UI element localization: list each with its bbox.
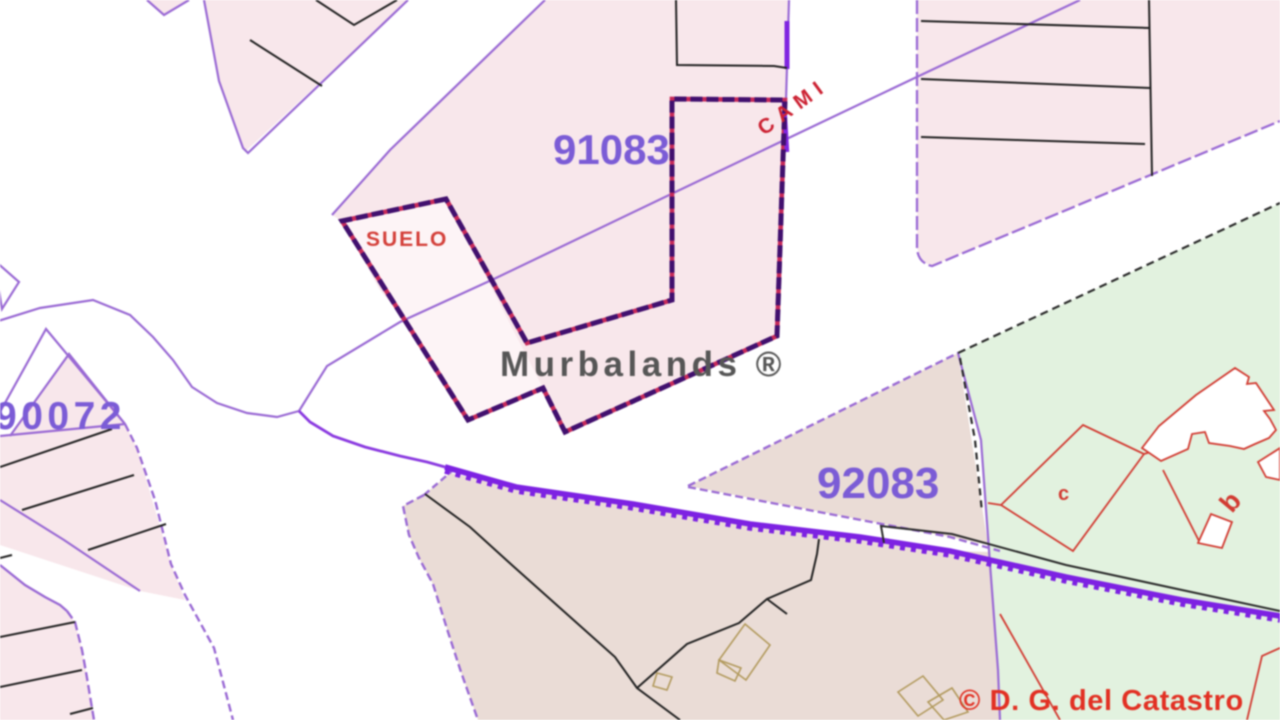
svg-text:SUELO: SUELO [366,228,448,251]
svg-text:c: c [1058,483,1069,505]
svg-text:90072: 90072 [0,395,126,438]
svg-text:© D. G. del Catastro: © D. G. del Catastro [959,685,1244,717]
svg-text:91083: 91083 [553,126,670,173]
svg-text:92083: 92083 [817,459,939,508]
svg-text:Murbalands ®: Murbalands ® [500,345,786,384]
